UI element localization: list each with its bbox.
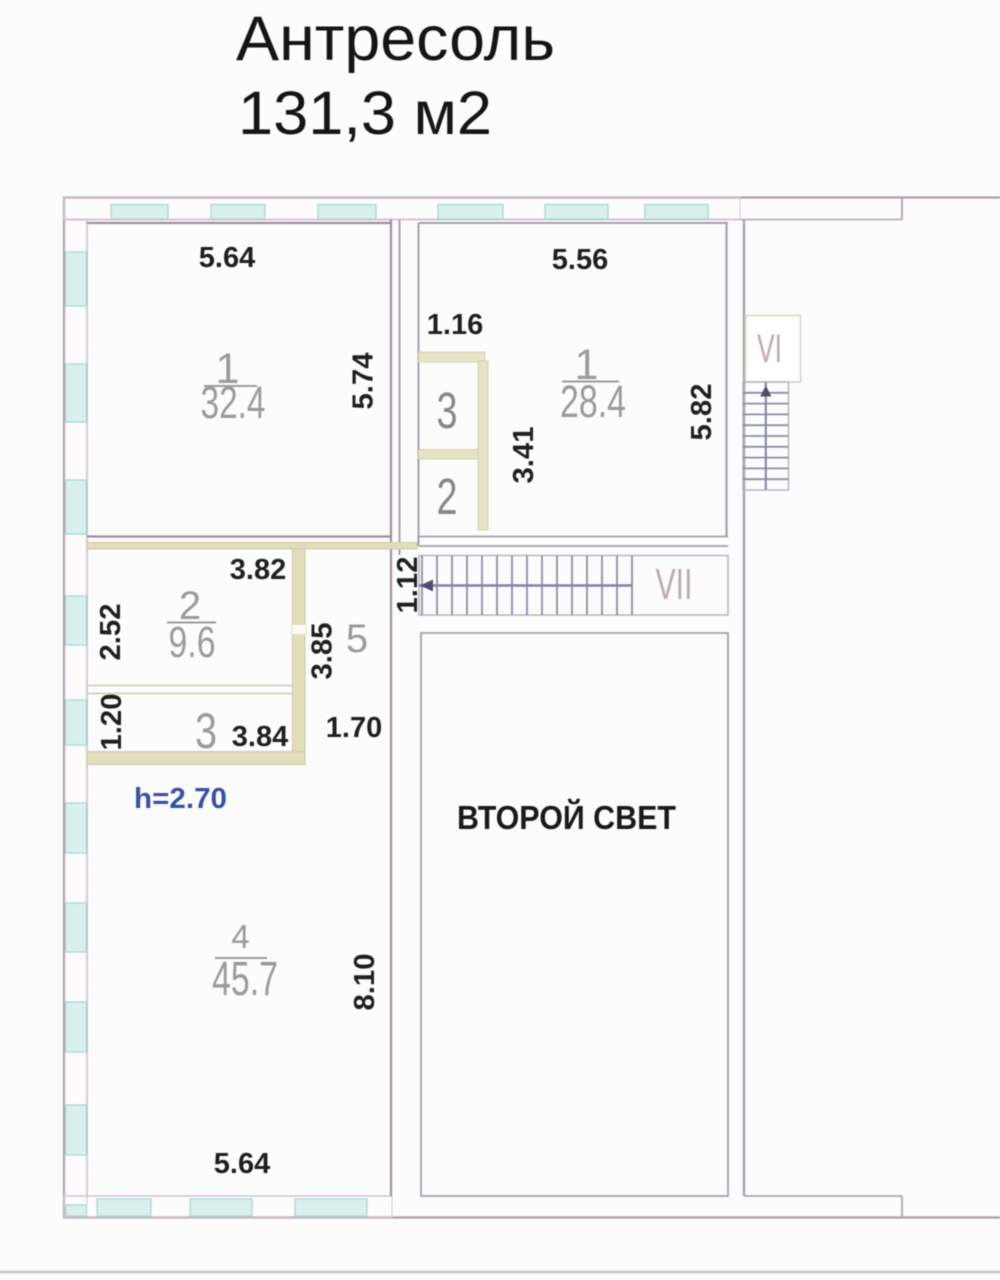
svg-text:1.20: 1.20 (96, 694, 128, 751)
svg-text:9.6: 9.6 (169, 618, 216, 667)
svg-text:2: 2 (437, 468, 458, 525)
svg-text:3.41: 3.41 (508, 427, 540, 484)
svg-text:h=2.70: h=2.70 (134, 783, 227, 815)
svg-text:2.52: 2.52 (95, 604, 127, 661)
svg-text:4: 4 (231, 918, 249, 955)
svg-text:3.85: 3.85 (307, 623, 339, 680)
svg-text:1.70: 1.70 (326, 712, 382, 744)
svg-text:5: 5 (346, 617, 368, 661)
svg-text:VII: VII (656, 560, 693, 609)
svg-text:45.7: 45.7 (212, 953, 278, 1006)
svg-text:Антресоль: Антресоль (236, 4, 555, 74)
svg-text:1.12: 1.12 (392, 557, 424, 614)
svg-text:5.64: 5.64 (214, 1148, 270, 1180)
svg-text:28.4: 28.4 (560, 376, 626, 427)
svg-text:3: 3 (195, 703, 217, 759)
svg-text:3.84: 3.84 (232, 721, 288, 753)
svg-text:5.64: 5.64 (199, 242, 255, 274)
svg-text:5.74: 5.74 (348, 353, 380, 410)
svg-text:ВТОРОЙ СВЕТ: ВТОРОЙ СВЕТ (457, 798, 676, 836)
svg-text:5.56: 5.56 (552, 244, 608, 276)
svg-text:32.4: 32.4 (201, 377, 266, 428)
svg-text:5.82: 5.82 (686, 384, 718, 441)
svg-text:8.10: 8.10 (349, 954, 381, 1011)
svg-text:3: 3 (437, 382, 458, 439)
svg-text:VI: VI (757, 327, 782, 371)
svg-text:1.16: 1.16 (427, 309, 483, 341)
svg-text:131,3 м2: 131,3 м2 (238, 79, 492, 147)
svg-text:3.82: 3.82 (230, 554, 286, 586)
